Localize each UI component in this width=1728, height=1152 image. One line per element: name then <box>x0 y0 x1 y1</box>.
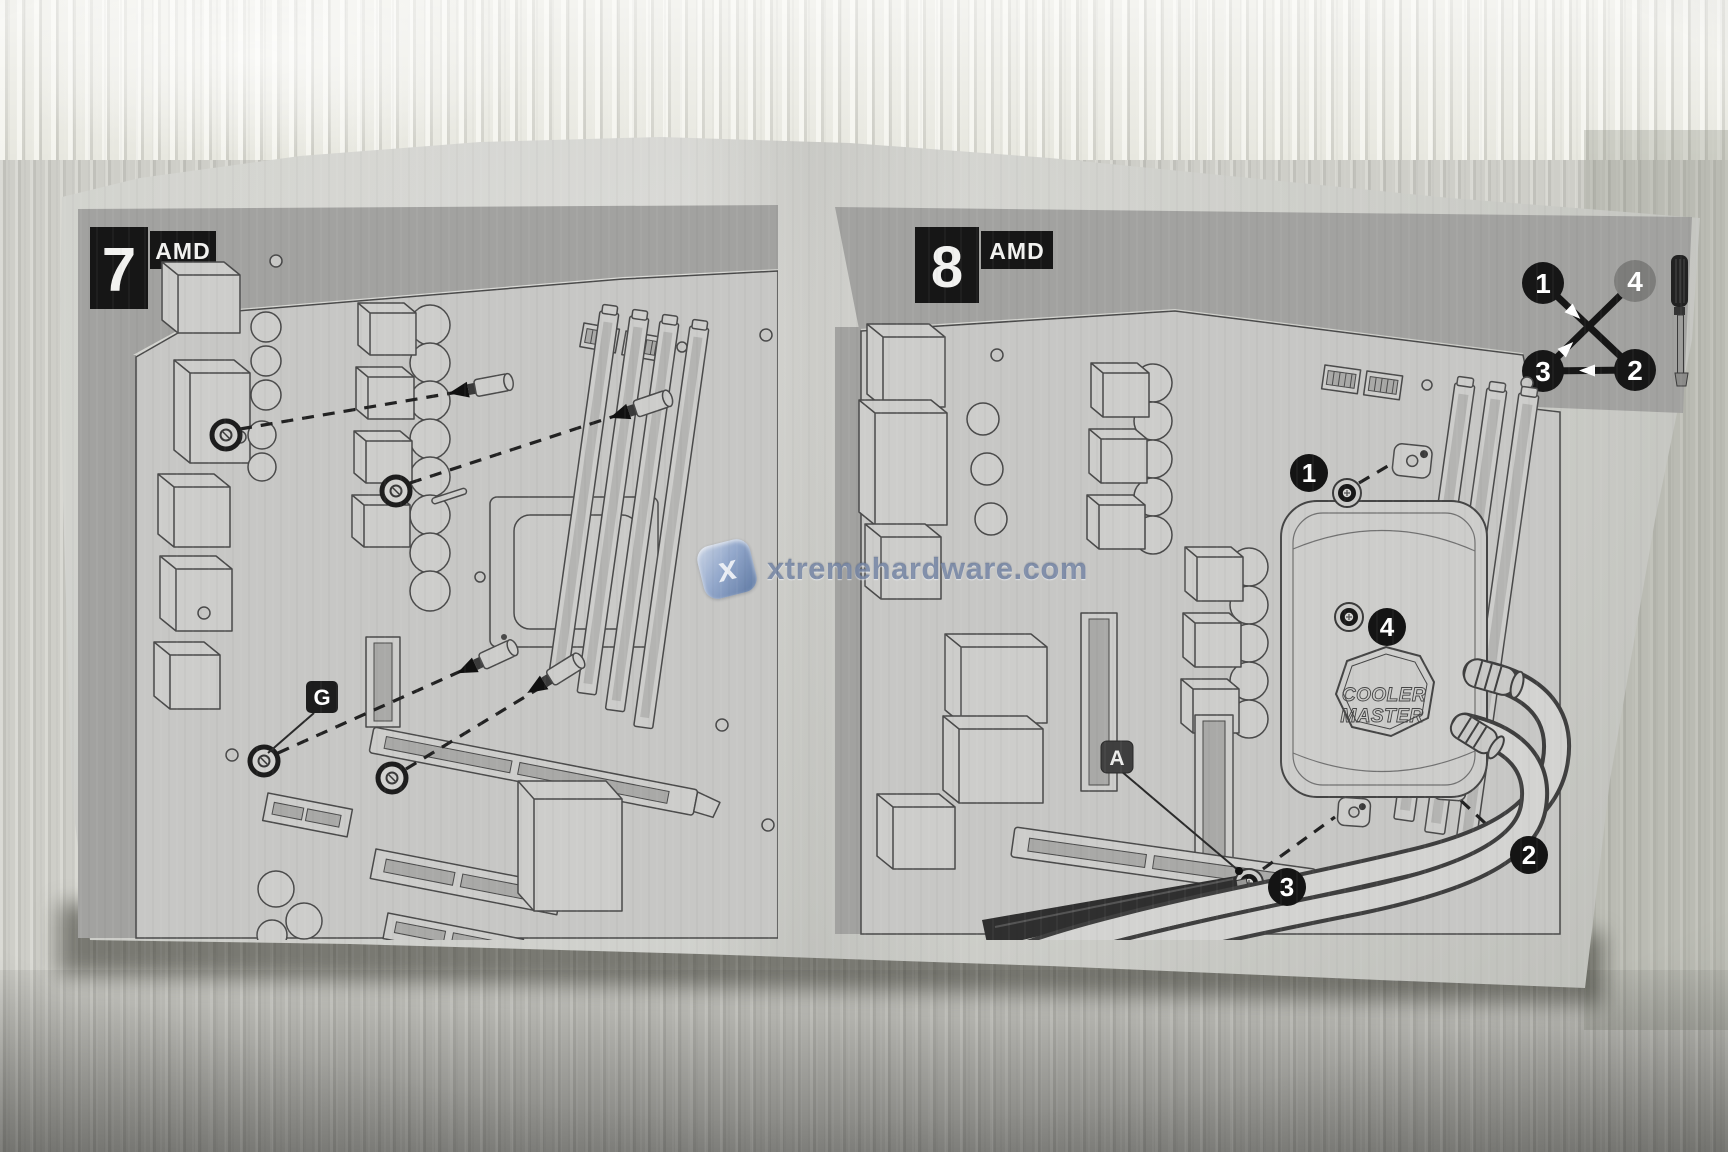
pci-slot-bar <box>366 637 400 727</box>
fastener-letter: G <box>313 685 330 710</box>
platform-label: AMD <box>155 238 210 264</box>
order-pos-3: 3 <box>1535 356 1551 387</box>
step-number-badge: 8 <box>915 227 979 303</box>
chipset-heatsink <box>518 781 622 911</box>
photo-of-cooler-manual: 7 AMD <box>0 0 1728 1152</box>
callout-number: 1 <box>1302 458 1316 488</box>
callout-number: 4 <box>1380 612 1395 642</box>
pump-logo-line1: COOLER <box>1342 685 1426 706</box>
order-pos-1: 1 <box>1535 268 1551 299</box>
watermark: x xtremehardware.com <box>700 542 1088 596</box>
logo-letter: x <box>713 548 741 590</box>
xtremehardware-logo-icon: x <box>694 536 759 601</box>
screw-callout-3: 3 <box>1268 868 1306 906</box>
step-number-badge: 7 <box>90 227 148 309</box>
platform-label: AMD <box>989 238 1044 264</box>
order-pos-4: 4 <box>1627 266 1643 297</box>
cooler-master-logo: COOLER MASTER <box>1336 647 1434 736</box>
screw-callout-2: 2 <box>1510 836 1548 874</box>
step-7-drawing: 7 AMD <box>78 205 778 940</box>
screw-callout-1: 1 <box>1290 454 1328 492</box>
callout-number: 3 <box>1280 872 1294 902</box>
step-number: 7 <box>102 236 136 305</box>
callout-number: 2 <box>1522 840 1536 870</box>
watermark-text: xtremehardware.com <box>767 551 1088 587</box>
amd-badge: AMD <box>981 231 1053 269</box>
tool-point-letter: A <box>1109 747 1124 770</box>
screw-callout-4: 4 <box>1368 608 1406 646</box>
pump-logo-line2: MASTER <box>1340 706 1423 727</box>
step-number: 8 <box>931 235 963 300</box>
order-pos-2: 2 <box>1627 355 1643 386</box>
step-7-panel: 7 AMD <box>78 205 778 940</box>
